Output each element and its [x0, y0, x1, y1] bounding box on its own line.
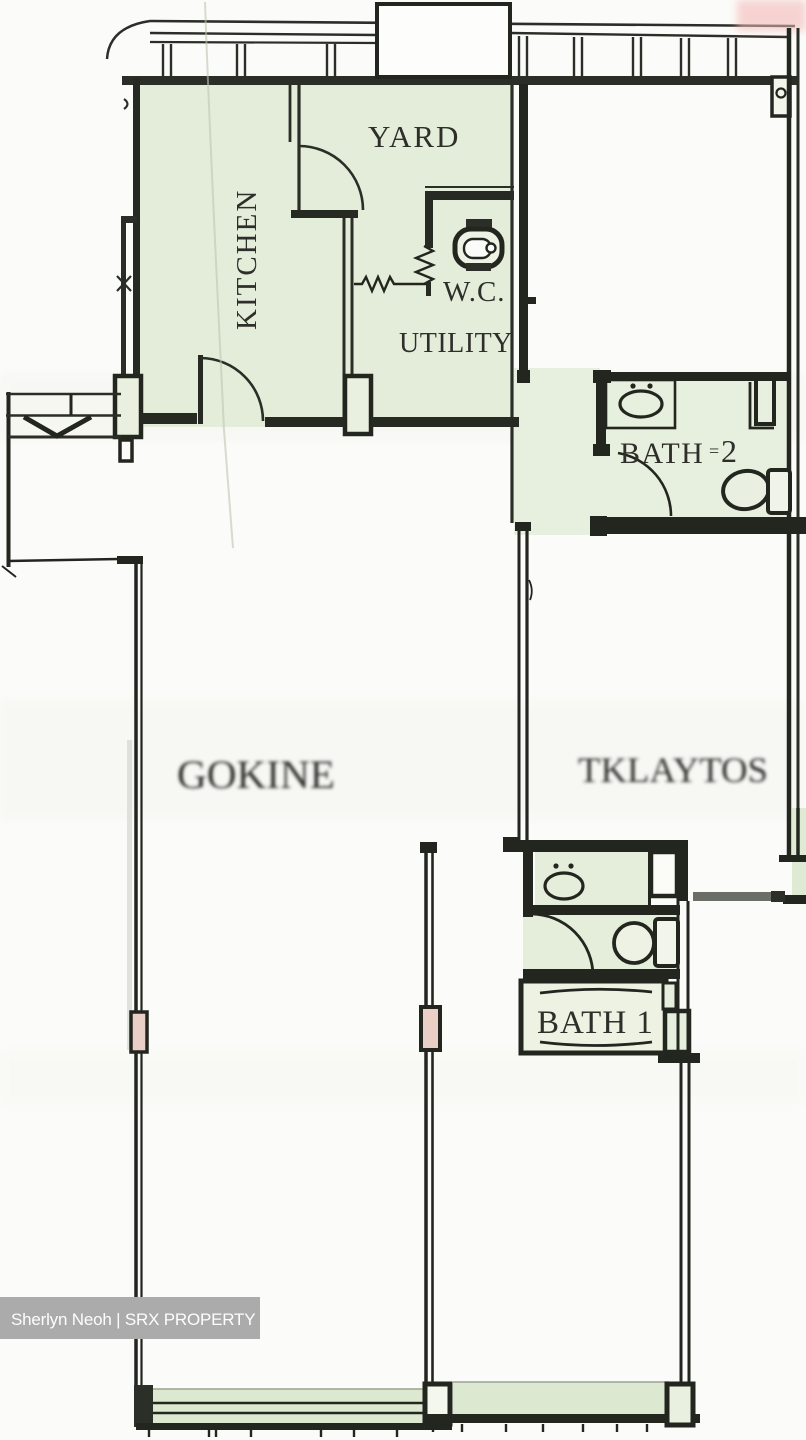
- svg-text:GOKINE: GOKINE: [177, 752, 335, 797]
- svg-text:W.C.: W.C.: [443, 276, 506, 308]
- svg-text:KITCHEN: KITCHEN: [231, 189, 263, 330]
- svg-text:=: =: [709, 441, 719, 461]
- svg-text:BATH: BATH: [620, 437, 704, 470]
- svg-text:BATH 1: BATH 1: [537, 1005, 654, 1041]
- svg-text:Sherlyn Neoh | SRX PROPERTY: Sherlyn Neoh | SRX PROPERTY: [11, 1310, 255, 1329]
- svg-text:2: 2: [721, 433, 737, 469]
- svg-text:TKLAYTOS: TKLAYTOS: [578, 750, 768, 790]
- svg-text:UTILITY: UTILITY: [399, 328, 513, 359]
- svg-text:YARD: YARD: [368, 119, 460, 154]
